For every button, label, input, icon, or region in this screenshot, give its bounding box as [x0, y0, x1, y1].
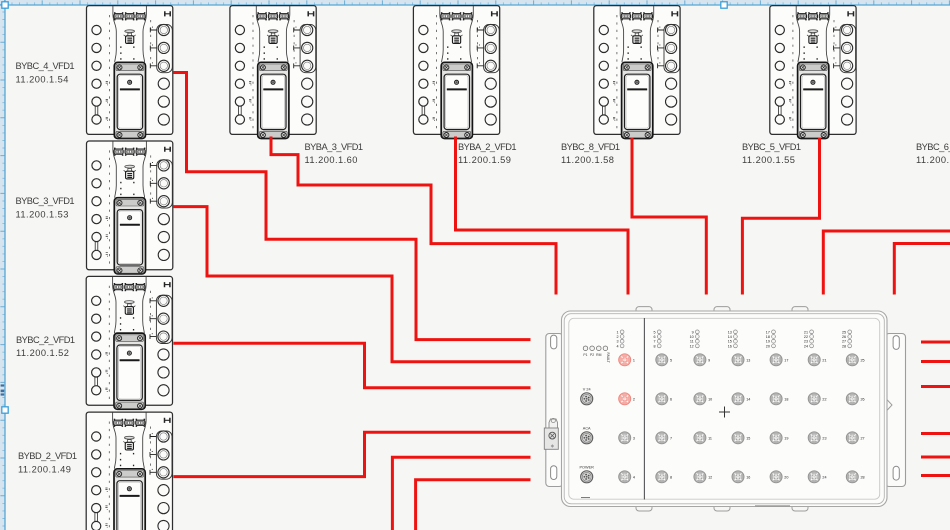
svg-text:17: 17	[766, 330, 770, 334]
svg-text:V 24: V 24	[583, 388, 591, 392]
svg-text:11.200.1.54: 11.200.1.54	[16, 74, 69, 84]
svg-text:9: 9	[692, 330, 694, 334]
svg-text:FAULT: FAULT	[606, 353, 610, 363]
svg-text:24: 24	[822, 475, 826, 479]
svg-text:18: 18	[766, 335, 770, 339]
svg-text:23: 23	[822, 436, 826, 440]
svg-text:RM: RM	[596, 353, 601, 357]
svg-text:21: 21	[822, 358, 826, 362]
svg-text:5: 5	[654, 330, 656, 334]
svg-text:25: 25	[861, 358, 865, 362]
svg-text:14: 14	[728, 335, 732, 339]
svg-text:18: 18	[784, 397, 788, 401]
svg-text:BYBC_4_VFD1: BYBC_4_VFD1	[16, 61, 75, 71]
svg-text:3: 3	[616, 340, 618, 344]
svg-text:20: 20	[766, 344, 770, 348]
svg-text:BYBC_3_VFD1: BYBC_3_VFD1	[16, 196, 75, 206]
svg-text:26: 26	[842, 335, 846, 339]
svg-text:6: 6	[670, 397, 672, 401]
svg-text:17: 17	[784, 358, 788, 362]
svg-text:11.200.1.52: 11.200.1.52	[16, 348, 69, 358]
svg-text:4: 4	[633, 475, 635, 479]
svg-text:2: 2	[616, 335, 618, 339]
svg-text:3: 3	[633, 436, 635, 440]
svg-text:ACA: ACA	[583, 427, 591, 431]
svg-text:BYBA_3_VFD1: BYBA_3_VFD1	[305, 142, 363, 152]
svg-text:P2: P2	[590, 353, 594, 357]
svg-text:25: 25	[842, 330, 846, 334]
svg-text:21: 21	[804, 330, 808, 334]
svg-text:P1: P1	[583, 353, 587, 357]
svg-text:BYBD_2_VFD1: BYBD_2_VFD1	[18, 451, 77, 461]
svg-text:13: 13	[746, 358, 750, 362]
svg-text:14: 14	[746, 397, 750, 401]
svg-text:15: 15	[746, 436, 750, 440]
svg-text:13: 13	[728, 330, 732, 334]
svg-text:19: 19	[784, 436, 788, 440]
svg-text:11.200.1.55: 11.200.1.55	[742, 155, 795, 165]
svg-text:BYBA_2_VFD1: BYBA_2_VFD1	[458, 142, 516, 152]
svg-text:POWER: POWER	[580, 466, 595, 470]
svg-text:19: 19	[766, 340, 770, 344]
svg-text:23: 23	[804, 340, 808, 344]
svg-text:12: 12	[690, 344, 694, 348]
svg-text:16: 16	[746, 475, 750, 479]
svg-text:2: 2	[633, 397, 635, 401]
svg-text:11.200.1.53: 11.200.1.53	[16, 209, 69, 219]
svg-text:1: 1	[616, 330, 618, 334]
svg-text:11.200.1.59: 11.200.1.59	[458, 155, 511, 165]
svg-text:26: 26	[861, 397, 865, 401]
svg-text:22: 22	[804, 335, 808, 339]
svg-text:BYBC_2_VFD1: BYBC_2_VFD1	[16, 335, 75, 345]
svg-text:11: 11	[708, 436, 712, 440]
svg-text:10: 10	[708, 397, 712, 401]
svg-text:BYBC_8_VFD1: BYBC_8_VFD1	[561, 142, 620, 152]
svg-text:28: 28	[861, 475, 865, 479]
svg-text:7: 7	[670, 436, 672, 440]
svg-text:15: 15	[728, 340, 732, 344]
svg-text:BYBC_5_VFD1: BYBC_5_VFD1	[742, 142, 801, 152]
svg-text:BYBC_6_VFD1: BYBC_6_VFD1	[916, 142, 950, 152]
svg-text:8: 8	[654, 344, 656, 348]
svg-text:20: 20	[784, 475, 788, 479]
svg-text:1: 1	[633, 358, 635, 362]
svg-text:28: 28	[842, 344, 846, 348]
svg-text:27: 27	[861, 436, 865, 440]
svg-text:11.200.1.58: 11.200.1.58	[561, 155, 614, 165]
svg-text:11: 11	[690, 340, 694, 344]
svg-text:16: 16	[728, 344, 732, 348]
svg-text:11.200.1.49: 11.200.1.49	[18, 464, 71, 474]
svg-text:5: 5	[670, 358, 672, 362]
svg-text:9: 9	[708, 358, 710, 362]
svg-text:12: 12	[708, 475, 712, 479]
svg-text:8: 8	[670, 475, 672, 479]
svg-text:27: 27	[842, 340, 846, 344]
svg-text:22: 22	[822, 397, 826, 401]
svg-text:11.200.1.56: 11.200.1.56	[916, 155, 950, 165]
svg-text:24: 24	[804, 344, 808, 348]
svg-text:6: 6	[654, 335, 656, 339]
svg-text:10: 10	[690, 335, 694, 339]
svg-text:11.200.1.60: 11.200.1.60	[305, 155, 358, 165]
svg-text:4: 4	[616, 344, 618, 348]
svg-text:7: 7	[654, 340, 656, 344]
